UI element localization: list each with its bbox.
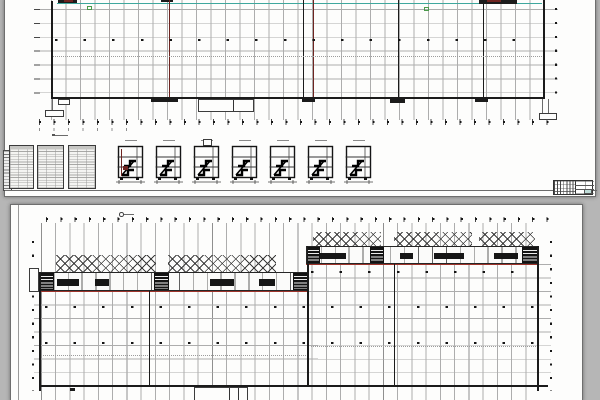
rooflight-band-right-2 [394, 232, 472, 246]
top-core-red-2 [487, 0, 501, 2]
stair-section-1-drawing [114, 142, 148, 190]
bottom-plan-bottom-wall [39, 385, 548, 388]
red-section-line-2 [313, 0, 314, 97]
fixture-right-3 [434, 253, 464, 259]
stair-section-1-red-line [121, 149, 122, 176]
fixture-right-2 [400, 253, 413, 259]
title-block-left-columns [554, 181, 576, 194]
left-dimension-dots [32, 241, 34, 391]
dock-box-left [45, 110, 64, 117]
sheet-bottom [10, 204, 583, 400]
room-strip-right [306, 246, 538, 264]
top-core-red-1 [64, 0, 73, 2]
red-line-right [306, 264, 539, 265]
bottom-annex-box [194, 387, 248, 400]
sheet-top [4, 0, 596, 197]
stair-section-1 [114, 140, 148, 188]
stair-section-7 [342, 140, 376, 188]
note-leader-line [54, 135, 68, 136]
hall-internal-wall-2 [307, 264, 309, 386]
top-plan-internal-wall-1 [303, 0, 304, 97]
schedule-table-1 [9, 145, 34, 189]
cad-drawing-canvas [0, 0, 600, 400]
top-core-block-2 [161, 0, 173, 2]
top-plan-dimension-dots [39, 121, 559, 123]
top-plan-row-ticks [34, 9, 40, 94]
fixture-left-1 [57, 279, 79, 286]
stair-core-right-2 [370, 247, 384, 263]
bottom-plan-left-wall [39, 272, 41, 391]
top-plan-right-wall [543, 0, 545, 98]
bottom-plan-right-wall [537, 246, 539, 391]
top-plan-column-dots [55, 39, 541, 41]
bottom-plan-hall-grid-right [308, 264, 551, 386]
top-plan-vertical-grid [51, 0, 544, 120]
stair-core-left-1 [40, 273, 54, 290]
schedule-table-3 [68, 145, 96, 189]
red-section-line-1 [169, 0, 170, 97]
fixture-left-4 [259, 279, 275, 286]
fixture-right-1 [320, 253, 346, 259]
datum-tail [124, 214, 134, 215]
note-flag [52, 134, 55, 137]
top-plan-bottom-wall [51, 97, 545, 99]
bottom-plan-dimension-dots [46, 218, 558, 220]
rooflight-band-right-1 [313, 232, 381, 246]
stair-section-6 [304, 140, 338, 188]
title-block [553, 180, 593, 195]
bottom-sheet-inner-frame [18, 205, 19, 400]
bottom-annex-divider-1 [229, 388, 230, 400]
fixture-left-3 [210, 279, 234, 286]
stair-section-4-drawing [228, 142, 262, 190]
loading-dock-1 [151, 99, 178, 102]
stair-core-right-1 [307, 247, 320, 263]
stair-section-3-drawing [190, 142, 224, 190]
annex-room-divider [233, 100, 234, 112]
hall-dotted-line-right [311, 346, 536, 347]
dock-box-1 [58, 99, 70, 106]
top-plan-dimension-ticks-2 [39, 128, 131, 131]
schedule-table-2 [37, 145, 64, 189]
fixture-left-2 [95, 279, 109, 286]
top-plan-right-grid-dots [555, 8, 557, 98]
hall-column-dots-row-1 [311, 271, 537, 273]
red-line-left [39, 291, 309, 292]
hall-column-dots-row-3 [45, 342, 537, 344]
bottom-annex-divider-2 [238, 388, 239, 400]
stair-section-2 [152, 140, 186, 188]
rooflight-band-left-2 [168, 255, 276, 272]
fixture-right-4 [494, 253, 518, 259]
stair-core-left-2 [154, 273, 169, 290]
stair-section-4 [228, 140, 262, 188]
hall-column-dots-row-2 [45, 306, 537, 308]
stair-section-3 [190, 140, 224, 188]
loading-dock-4 [475, 99, 488, 103]
frame-bottom-line [5, 190, 597, 191]
right-dimension-dots [550, 241, 552, 391]
stair-section-7-drawing [342, 142, 376, 190]
stair-section-5-drawing [266, 142, 300, 190]
annex-room [198, 99, 254, 113]
rooflight-band-right-3 [479, 232, 535, 246]
stair-section-5 [266, 140, 300, 188]
hall-internal-wall-3 [394, 264, 396, 386]
top-plan-internal-wall-3 [483, 0, 484, 97]
room-strip-left [39, 272, 308, 291]
top-plan-utility-line [57, 3, 542, 4]
stair-section-6-drawing [304, 142, 338, 190]
top-plan-dotted-line [53, 56, 542, 57]
loading-dock-3 [390, 99, 405, 103]
green-marker-1 [87, 6, 92, 10]
loading-dock-2 [302, 99, 315, 102]
stair-section-1-red-block [123, 166, 128, 170]
rooflight-band-left-1 [56, 255, 156, 272]
top-plan-left-wall [51, 1, 53, 97]
title-block-highlight-cell [584, 189, 592, 194]
stair-section-2-drawing [152, 142, 186, 190]
top-plan-internal-wall-2 [398, 0, 399, 97]
green-marker-2 [424, 7, 429, 11]
left-entrance-box [29, 268, 39, 292]
hall-dotted-line-left [43, 355, 306, 356]
bottom-black-tick [70, 388, 75, 391]
